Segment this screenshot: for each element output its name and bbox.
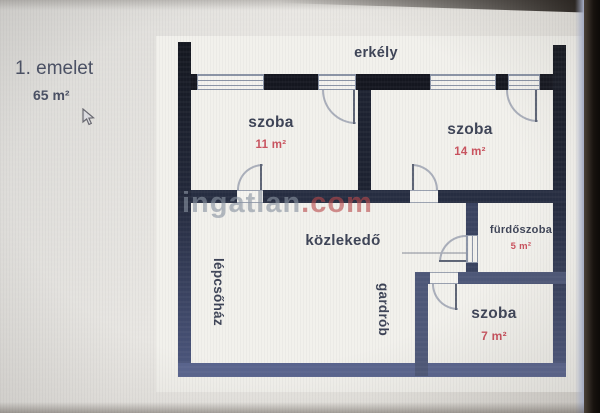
photo-dark-edge-right bbox=[584, 0, 600, 413]
wall-top-segment bbox=[496, 74, 508, 90]
room-label-szoba14: szoba bbox=[410, 121, 530, 139]
window-left bbox=[197, 74, 264, 90]
balcony-door-left-sill bbox=[318, 74, 356, 90]
wall-top-segment bbox=[356, 74, 430, 90]
wall-bottom bbox=[178, 363, 566, 377]
door-szoba14-sill bbox=[410, 190, 438, 203]
watermark-tld: .com bbox=[301, 187, 373, 219]
photo-bottom-shade bbox=[0, 402, 600, 413]
wall-szoba7-top bbox=[415, 272, 430, 284]
balcony-door-right-sill bbox=[508, 74, 540, 90]
wall-szoba7-top bbox=[458, 272, 566, 284]
room-label-lepcsohaz: lépcsőház bbox=[211, 258, 226, 356]
room-area-furdoszoba: 5 m² bbox=[468, 241, 574, 252]
floor-area-label: 65 m² bbox=[33, 87, 70, 103]
balcony-door-left-leaf bbox=[353, 90, 355, 124]
balcony-door-right-leaf bbox=[535, 90, 537, 122]
room-label-kozlekedo: közlekedő bbox=[272, 232, 414, 249]
photo-of-floorplan: { "header": { "floor_label": "1. emelet"… bbox=[0, 0, 600, 413]
watermark-name: ingatlan bbox=[182, 187, 301, 219]
wall-bathroom-left bbox=[466, 263, 478, 272]
floor-title: 1. emelet bbox=[15, 58, 93, 80]
room-label-gardrob: gardrób bbox=[376, 283, 391, 349]
room-area-szoba14: 14 m² bbox=[410, 146, 530, 158]
room-area-szoba7: 7 m² bbox=[434, 329, 554, 343]
door-bathroom-leaf bbox=[439, 260, 466, 262]
mouse-cursor-icon bbox=[82, 108, 97, 127]
wall-szoba7-left bbox=[415, 284, 428, 376]
wall-hall-segment bbox=[438, 190, 566, 203]
screen-edge-highlight bbox=[575, 0, 584, 413]
room-label-szoba11: szoba bbox=[211, 114, 331, 132]
door-szoba14-leaf bbox=[412, 164, 414, 190]
watermark: ingatlan.com bbox=[182, 187, 373, 220]
room-label-szoba7: szoba bbox=[434, 305, 554, 323]
wall-top-segment bbox=[540, 74, 553, 90]
window-right bbox=[430, 74, 496, 90]
door-szoba7-sill bbox=[430, 272, 458, 284]
room-label-furdoszoba: fürdőszoba bbox=[468, 224, 574, 236]
wall-top-segment bbox=[264, 74, 318, 90]
room-area-szoba11: 11 m² bbox=[211, 139, 331, 151]
room-label-erkely: erkély bbox=[326, 45, 426, 61]
wall-right bbox=[553, 45, 566, 377]
